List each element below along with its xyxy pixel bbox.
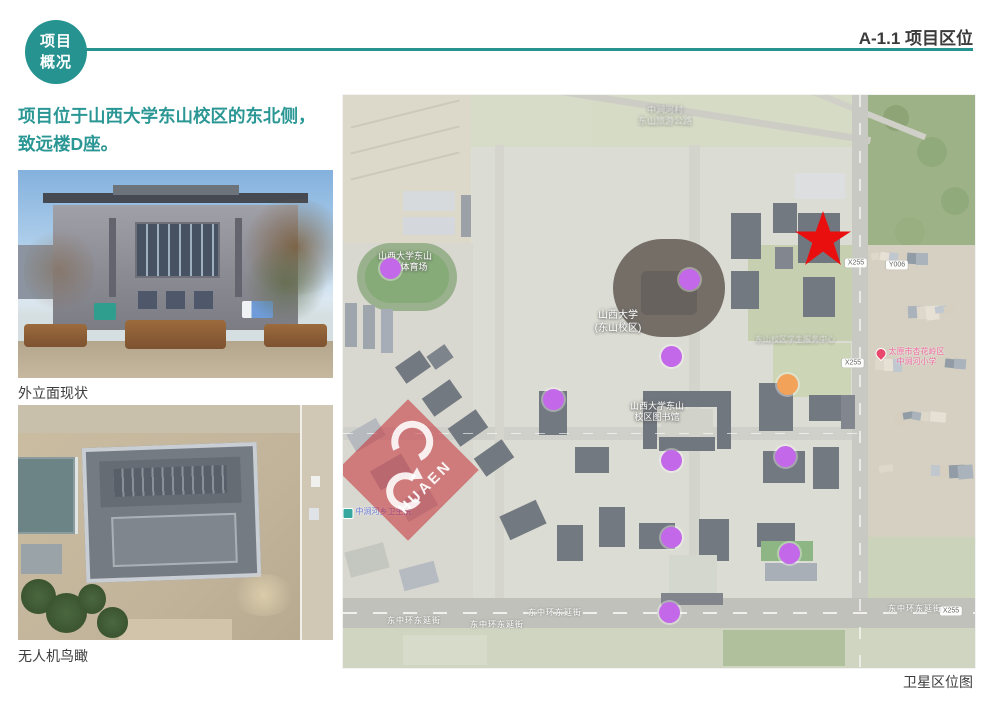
green-roof-building <box>18 457 78 535</box>
poi-dot-9 <box>659 602 680 623</box>
poi-dot-1 <box>380 258 401 279</box>
green-vehicle <box>94 303 116 320</box>
intro-line1: 项目位于山西大学东山校区的东北侧， <box>18 102 340 130</box>
header-divider-line <box>82 48 973 51</box>
poi-dot-8 <box>779 543 800 564</box>
facade-photo <box>18 170 333 378</box>
section-badge: 项目 概况 <box>25 20 87 84</box>
aerial-photo <box>18 405 333 640</box>
badge-line2: 概况 <box>40 52 72 73</box>
slide-page: 项目 概况 A-1.1 项目区位 项目位于山西大学东山校区的东北侧， 致远楼D座… <box>0 0 992 703</box>
aerial-main-building <box>82 442 262 583</box>
section-code-label: A-1.1 项目区位 <box>859 24 973 49</box>
aerial-caption: 无人机鸟瞰 <box>18 646 88 666</box>
intro-line2: 致远楼D座。 <box>18 130 340 158</box>
map-markers <box>343 95 975 668</box>
poi-dot-5 <box>661 450 682 471</box>
poi-dot-orange <box>777 374 798 395</box>
intro-text: 项目位于山西大学东山校区的东北侧， 致远楼D座。 <box>18 102 340 158</box>
poi-dot-4 <box>543 389 564 410</box>
poi-dot-7 <box>661 527 682 548</box>
poi-dot-6 <box>775 446 796 467</box>
poi-dot-3 <box>661 346 682 367</box>
badge-line1: 项目 <box>40 31 72 52</box>
poi-dot-2 <box>679 269 700 290</box>
site-location-star <box>795 211 851 265</box>
satellite-map: 中涧河村东山旅游公路山西大学东山校区体育场山西大学(东山校区)山西大学东山校区图… <box>343 95 975 668</box>
map-caption: 卫星区位图 <box>903 672 973 692</box>
facade-caption: 外立面现状 <box>18 383 88 403</box>
photo-window-band <box>135 222 221 278</box>
